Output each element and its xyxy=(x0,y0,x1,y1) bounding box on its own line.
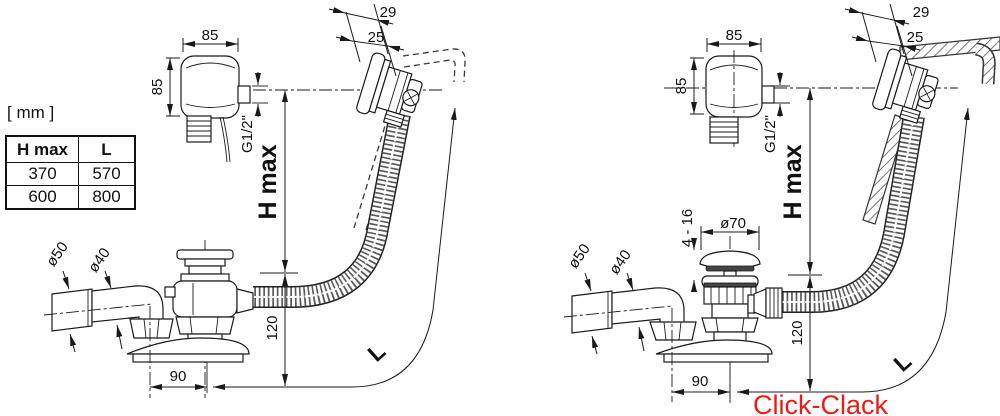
dim-85-height: 85 xyxy=(149,58,180,116)
table-cell: 570 xyxy=(79,163,136,186)
dim-85-width: 85 xyxy=(183,27,238,52)
table-header-hmax: H max xyxy=(6,136,79,163)
dim-length-label: L xyxy=(362,338,390,367)
table-header-l: L xyxy=(79,136,136,163)
right-diagram: 29 25 85 xyxy=(564,4,1000,416)
dim-clamp-range: 4 - 16 xyxy=(679,209,696,292)
table-row: 600 800 xyxy=(6,186,135,210)
dim-dia50-label: ø50 xyxy=(565,241,594,272)
overflow-fitting xyxy=(355,52,428,130)
dim-29-label: 29 xyxy=(380,4,397,21)
dim-85-width-label: 85 xyxy=(202,27,219,44)
elbow-pipe xyxy=(44,286,173,398)
dim-hmax: H max xyxy=(254,90,285,272)
dim-85-width-label: 85 xyxy=(726,27,743,44)
dim-thread: G1/2" xyxy=(239,72,268,153)
dim-90: 90 xyxy=(672,364,730,399)
dim-hmax-label: H max xyxy=(254,144,282,219)
dim-120-label: 120 xyxy=(264,315,281,340)
dim-dia50-label: ø50 xyxy=(43,239,72,270)
dim-85-width: 85 xyxy=(707,27,761,52)
table-row: 370 570 xyxy=(6,163,135,186)
dim-85-height-label: 85 xyxy=(673,78,690,95)
dim-dia40-label: ø40 xyxy=(606,247,635,278)
dim-length-label: L xyxy=(888,348,916,377)
caption-click-clack: Click-Clack xyxy=(753,390,889,416)
technical-drawing: 29 25 85 xyxy=(0,0,1000,416)
dim-thread-label: G1/2" xyxy=(762,115,779,153)
dim-90: 90 xyxy=(150,362,207,393)
dim-dia70-label: ø70 xyxy=(720,215,746,232)
elbow-pipe xyxy=(564,288,696,402)
dim-120-label: 120 xyxy=(789,320,806,345)
table-cell: 800 xyxy=(79,186,136,210)
table-cell: 370 xyxy=(6,163,79,186)
drawing-sheet: [ mm ] H max L 370 570 600 800 xyxy=(0,0,1000,416)
units-label: [ mm ] xyxy=(7,103,54,123)
dim-hmax-label: H max xyxy=(779,144,807,219)
dim-25-label: 25 xyxy=(907,29,924,46)
bath-wall-hatched xyxy=(863,37,1000,224)
dim-85-height: 85 xyxy=(673,58,704,114)
dim-25-label: 25 xyxy=(368,29,385,46)
table-cell: 600 xyxy=(6,186,79,210)
dim-dia40-label: ø40 xyxy=(85,245,114,276)
dim-hmax: H max xyxy=(779,88,810,274)
dim-clamp-range-label: 4 - 16 xyxy=(679,209,696,247)
dim-85-height-label: 85 xyxy=(149,79,166,96)
dim-90-label: 90 xyxy=(692,373,709,390)
dim-29-label: 29 xyxy=(913,4,930,21)
dim-29-25: 29 25 xyxy=(329,4,404,76)
dim-thread: G1/2" xyxy=(762,72,790,153)
dim-90-label: 90 xyxy=(170,368,187,385)
dimension-table: H max L 370 570 600 800 xyxy=(5,135,136,210)
